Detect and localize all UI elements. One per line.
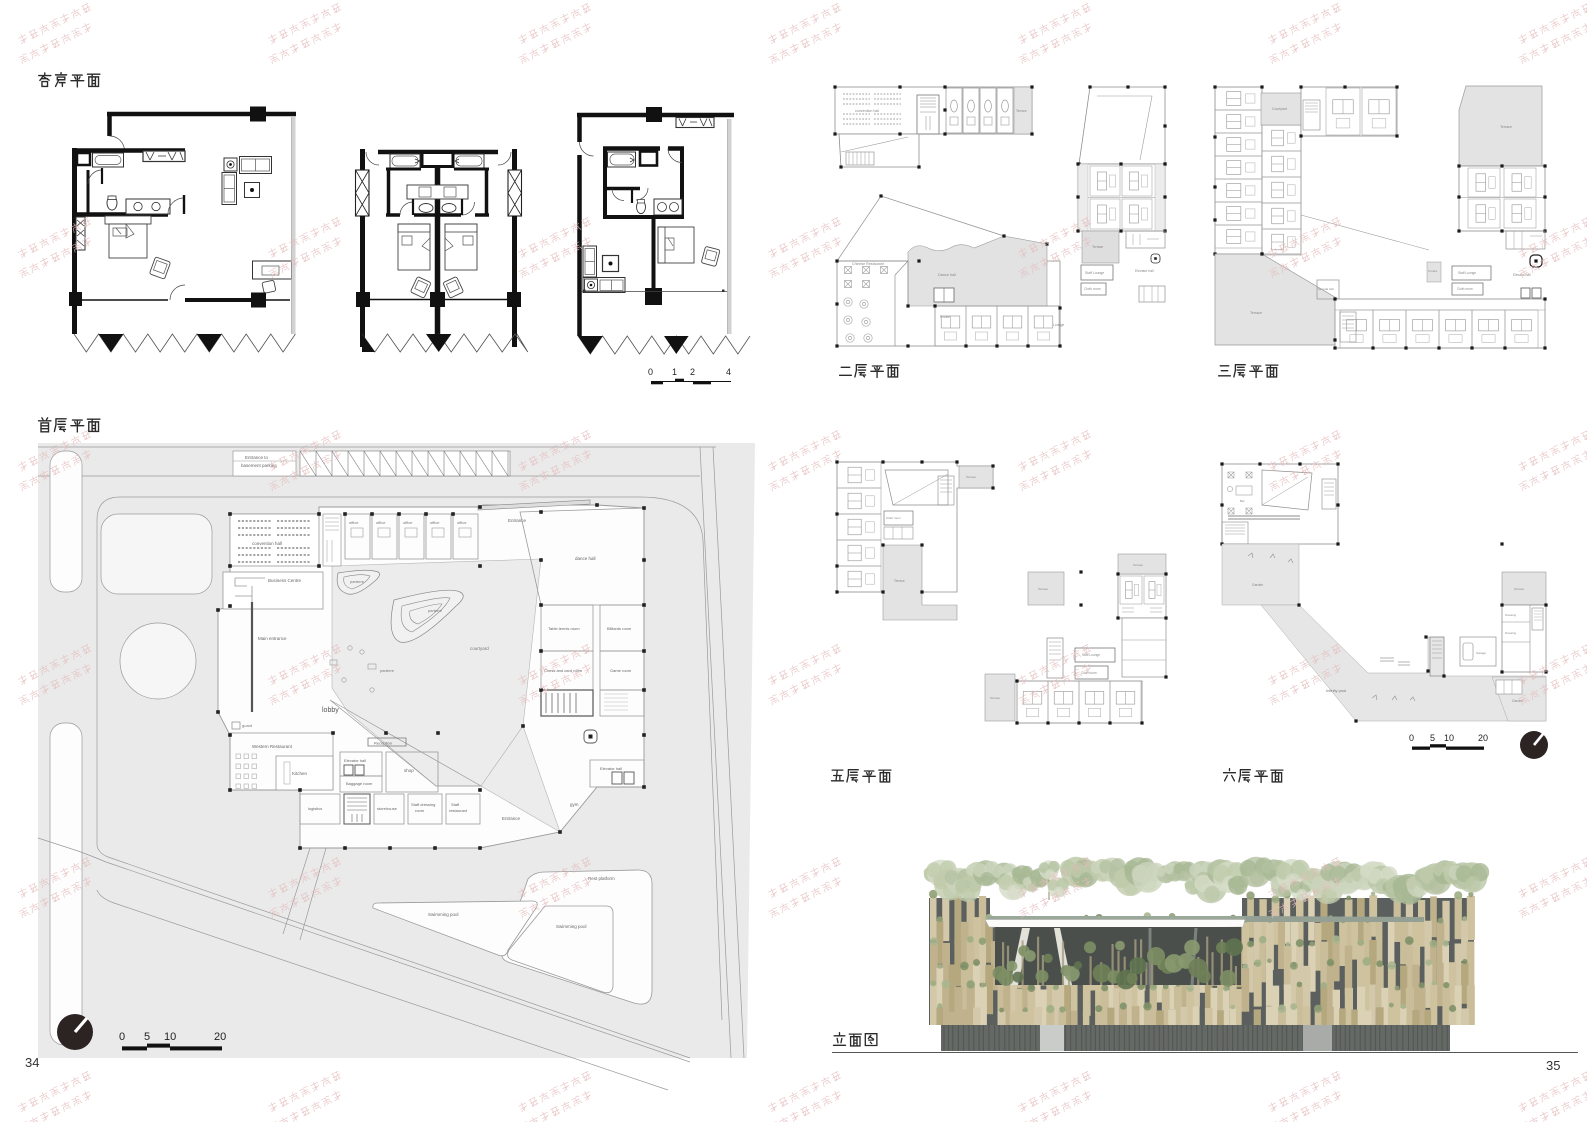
svg-text:Dressing: Dressing <box>1505 613 1516 617</box>
svg-text:20: 20 <box>214 1031 226 1043</box>
svg-text:office: office <box>457 520 467 525</box>
svg-text:Garden: Garden <box>1252 583 1263 587</box>
svg-text:Terrace: Terrace <box>1428 269 1438 273</box>
svg-text:Cloth room: Cloth room <box>886 516 901 520</box>
svg-text:Infinity pool: Infinity pool <box>1326 688 1346 693</box>
svg-text:Staff: Staff <box>451 802 460 807</box>
svg-text:office: office <box>430 520 440 525</box>
svg-text:Swimming pool: Swimming pool <box>556 924 587 929</box>
svg-text:35: 35 <box>1546 1058 1560 1073</box>
svg-text:10: 10 <box>1444 733 1454 743</box>
svg-text:Lounge: Lounge <box>1053 323 1064 327</box>
svg-text:4: 4 <box>726 367 731 377</box>
svg-text:Kitchen: Kitchen <box>292 771 308 776</box>
svg-text:Elevator hall: Elevator hall <box>600 766 622 771</box>
svg-text:Main entrance: Main entrance <box>258 636 287 641</box>
svg-text:Cloth room: Cloth room <box>1081 671 1097 675</box>
svg-text:guard: guard <box>242 723 252 728</box>
svg-text:Dressing: Dressing <box>1505 631 1516 635</box>
svg-text:logistics: logistics <box>308 806 322 811</box>
svg-text:Terrace: Terrace <box>1016 109 1027 113</box>
svg-text:convention hall: convention hall <box>252 541 282 546</box>
svg-text:restaurant: restaurant <box>449 808 468 813</box>
svg-text:Chess and card room: Chess and card room <box>544 668 583 673</box>
svg-text:Garage: Garage <box>1476 651 1486 655</box>
svg-text:Terrace: Terrace <box>894 579 905 583</box>
svg-text:Entrance: Entrance <box>502 816 521 821</box>
svg-text:office: office <box>403 520 413 525</box>
svg-text:office: office <box>376 520 386 525</box>
svg-text:courtyard: courtyard <box>470 646 489 651</box>
svg-text:Baggage room: Baggage room <box>346 781 373 786</box>
svg-text:0: 0 <box>648 367 653 377</box>
svg-text:34: 34 <box>25 1055 39 1070</box>
svg-text:Entrance: Entrance <box>508 518 527 523</box>
svg-text:Secada hall: Secada hall <box>1318 287 1334 291</box>
svg-text:Elevator hall: Elevator hall <box>344 758 366 763</box>
svg-text:room: room <box>415 808 425 813</box>
svg-text:Game room: Game room <box>610 668 632 673</box>
svg-text:5: 5 <box>144 1031 150 1043</box>
svg-text:Rest platform: Rest platform <box>588 876 615 881</box>
svg-text:shop: shop <box>404 768 414 773</box>
svg-text:2: 2 <box>690 367 695 377</box>
svg-text:Reception: Reception <box>374 741 392 746</box>
svg-text:10: 10 <box>164 1031 176 1043</box>
svg-text:Terrace: Terrace <box>1133 563 1143 567</box>
svg-text:convention hall: convention hall <box>855 109 879 113</box>
svg-text:Terrace: Terrace <box>1250 311 1262 315</box>
svg-text:Business Centre: Business Centre <box>268 578 302 583</box>
svg-text:Courtyard: Courtyard <box>1272 107 1287 111</box>
svg-text:Terrace: Terrace <box>990 696 1000 700</box>
svg-text:5: 5 <box>1430 733 1435 743</box>
svg-text:office: office <box>349 520 359 525</box>
svg-text:storehouse: storehouse <box>377 806 398 811</box>
svg-text:0: 0 <box>119 1031 125 1043</box>
svg-text:Cloth room: Cloth room <box>1084 287 1101 291</box>
svg-text:20: 20 <box>1478 733 1488 743</box>
svg-text:parterre: parterre <box>380 668 395 673</box>
svg-text:Staff Lounge: Staff Lounge <box>1458 271 1476 275</box>
svg-text:Terrace: Terrace <box>1092 245 1103 249</box>
svg-text:gym: gym <box>570 802 579 807</box>
svg-text:Elevator hall: Elevator hall <box>1135 269 1154 273</box>
svg-text:Terrace: Terrace <box>966 475 976 479</box>
svg-text:Bar: Bar <box>1240 499 1245 503</box>
svg-text:Table tennis room: Table tennis room <box>548 626 580 631</box>
svg-text:0: 0 <box>1409 733 1414 743</box>
svg-text:parterre: parterre <box>428 608 443 613</box>
svg-text:1: 1 <box>672 367 677 377</box>
svg-text:lobby: lobby <box>322 707 339 714</box>
svg-text:Entrance to: Entrance to <box>245 455 269 460</box>
svg-text:Dance hall: Dance hall <box>938 273 956 277</box>
svg-text:Terrace: Terrace <box>1038 587 1048 591</box>
svg-text:Terrace: Terrace <box>1500 125 1512 129</box>
svg-text:Western Restaurant: Western Restaurant <box>252 744 293 749</box>
svg-text:Staff Lounge: Staff Lounge <box>1085 271 1104 275</box>
svg-text:dance hall: dance hall <box>575 556 596 561</box>
svg-text:Billiards room: Billiards room <box>607 626 632 631</box>
svg-text:Chinese Restaurant: Chinese Restaurant <box>852 262 884 266</box>
svg-text:parterre: parterre <box>350 579 365 584</box>
svg-text:Cloth room: Cloth room <box>1457 287 1473 291</box>
svg-text:Terrace: Terrace <box>1514 587 1524 591</box>
svg-text:Private: Private <box>940 315 950 319</box>
svg-text:Staff dressing: Staff dressing <box>411 802 435 807</box>
svg-text:Swimming pool: Swimming pool <box>428 912 459 917</box>
